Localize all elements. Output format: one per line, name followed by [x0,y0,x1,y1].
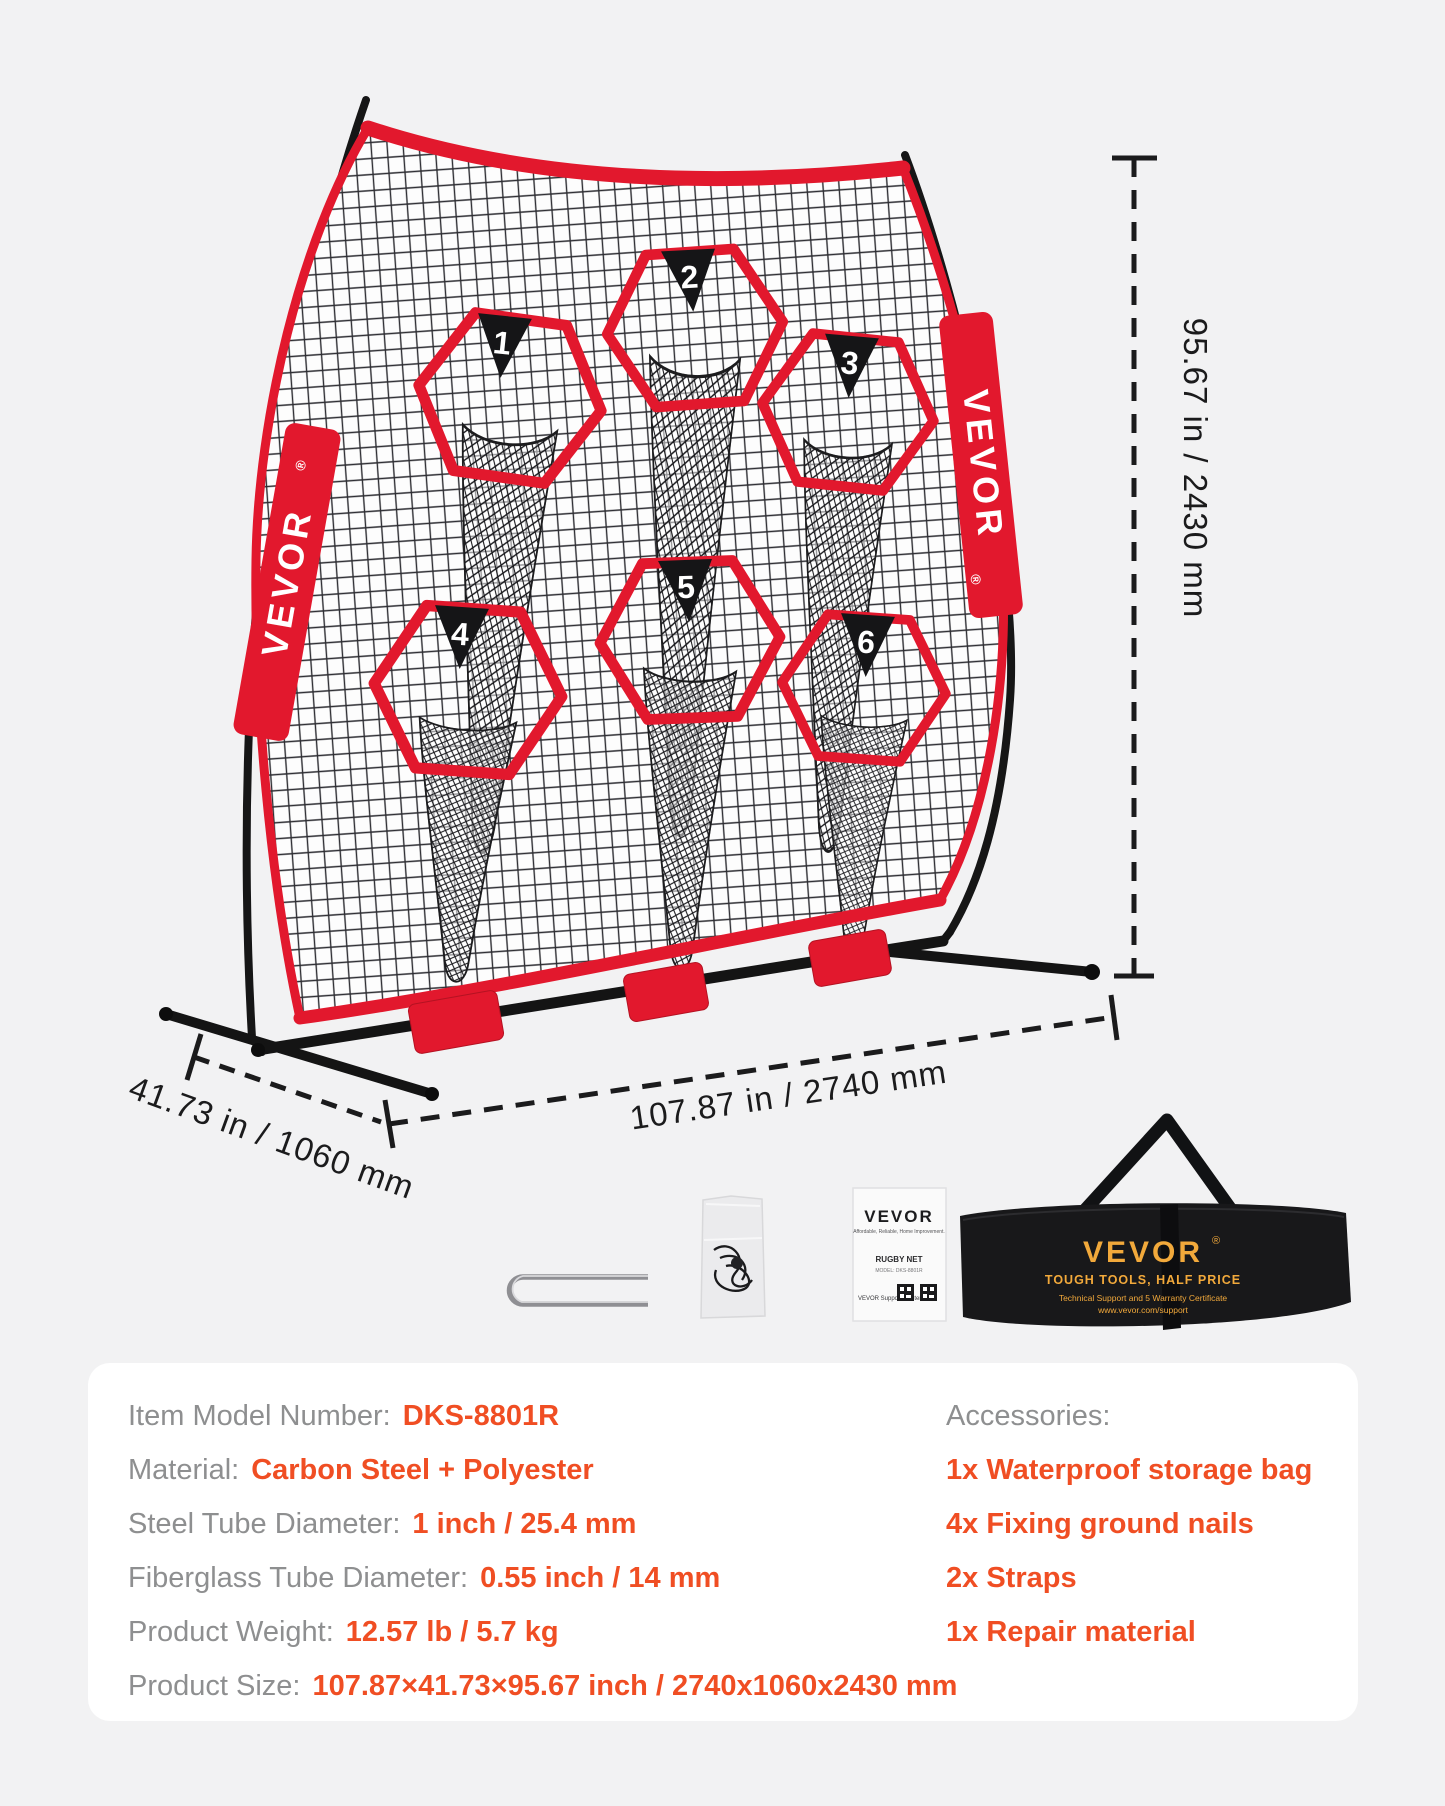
spec-value: 1 inch / 25.4 mm [412,1508,636,1541]
spec-value: 107.87×41.73×95.67 inch / 2740x1060x2430… [312,1670,957,1703]
accessory-item: 1x Repair material [946,1616,1196,1649]
manual-model-text: MODEL: DKS-8801R [875,1268,923,1274]
flag-number-5: 5 [676,569,695,606]
spec-column-right: Accessories: 1x Waterproof storage bag 4… [946,1389,1312,1659]
spec-row-steel-tube: Steel Tube Diameter: 1 inch / 25.4 mm [128,1497,957,1551]
right-foot-bar [890,952,1092,972]
qr-code [920,1284,937,1301]
accessory-item: 1x Waterproof storage bag [946,1454,1312,1487]
flag-number-3: 3 [839,344,860,381]
depth-dim-label: 41.73 in / 1060 mm [124,1068,419,1206]
sleeve-3 [808,929,893,988]
spec-value: 12.57 lb / 5.7 kg [346,1616,559,1649]
net-panel [256,128,1004,1018]
qr-code [897,1284,914,1301]
ground-nail-image [510,1276,649,1304]
spec-label: Product Size: [128,1670,300,1703]
flag-number-4: 4 [450,615,470,652]
spec-panel: Item Model Number: DKS-8801R Material: C… [88,1363,1358,1721]
repair-kit-ball [731,1257,743,1269]
sleeve-2 [622,961,709,1022]
bag-slogan-text: TOUGH TOOLS, HALF PRICE [1045,1273,1241,1287]
width-dim-label: 107.87 in / 2740 mm [627,1053,949,1137]
spec-label: Material: [128,1454,239,1487]
spec-row-fiberglass-tube: Fiberglass Tube Diameter: 0.55 inch / 14… [128,1551,957,1605]
net-mesh [256,128,1004,1018]
accessory-item: 4x Fixing ground nails [946,1508,1254,1541]
flag-number-2: 2 [680,259,700,296]
accessories-title: Accessories: [946,1400,1110,1433]
spec-value: Carbon Steel + Polyester [251,1454,594,1487]
accessory-item-row: 4x Fixing ground nails [946,1497,1312,1551]
spec-value: 0.55 inch / 14 mm [480,1562,720,1595]
spec-label: Fiberglass Tube Diameter: [128,1562,468,1595]
bag-line2-text: www.vevor.com/support [1097,1305,1188,1315]
accessory-item-row: 1x Waterproof storage bag [946,1443,1312,1497]
accessories-title-row: Accessories: [946,1389,1312,1443]
storage-bag-image: VEVOR ® TOUGH TOOLS, HALF PRICE Technica… [960,1120,1351,1330]
bag-reg-mark: ® [1212,1235,1220,1247]
manual-brand-text: VEVOR [864,1207,934,1226]
spec-label: Steel Tube Diameter: [128,1508,400,1541]
product-infographic: 1 2 3 4 5 6 VEVOR ® VEVOR ® [0,0,1445,1806]
manual-product-text: RUGBY NET [876,1255,923,1264]
spec-row-size: Product Size: 107.87×41.73×95.67 inch / … [128,1659,957,1713]
width-dim-tick-right [1111,995,1117,1040]
flag-number-1: 1 [491,324,512,362]
manual-tagline-text: Affordable, Reliable, Home Improvement. [853,1229,945,1235]
bag-brand-text: VEVOR [1083,1236,1203,1269]
bag-line1-text: Technical Support and 5 Warranty Certifi… [1059,1293,1228,1303]
accessory-item: 2x Straps [946,1562,1077,1595]
spec-row-material: Material: Carbon Steel + Polyester [128,1443,957,1497]
spec-row-model: Item Model Number: DKS-8801R [128,1389,957,1443]
spec-column-left: Item Model Number: DKS-8801R Material: C… [128,1389,957,1713]
spec-value: DKS-8801R [403,1400,559,1433]
spec-label: Item Model Number: [128,1400,391,1433]
right-pole-joint [943,932,950,941]
height-dim-label: 95.67 in / 2430 mm [1177,318,1214,619]
spec-row-weight: Product Weight: 12.57 lb / 5.7 kg [128,1605,957,1659]
repair-material-bag-image [701,1196,765,1318]
accessory-item-row: 1x Repair material [946,1605,1312,1659]
spec-label: Product Weight: [128,1616,334,1649]
flag-number-6: 6 [856,623,876,660]
manual-card-image: VEVOR Affordable, Reliable, Home Improve… [853,1188,946,1321]
accessory-item-row: 2x Straps [946,1551,1312,1605]
product-illustration: 1 2 3 4 5 6 VEVOR ® VEVOR ® [0,0,1445,1360]
